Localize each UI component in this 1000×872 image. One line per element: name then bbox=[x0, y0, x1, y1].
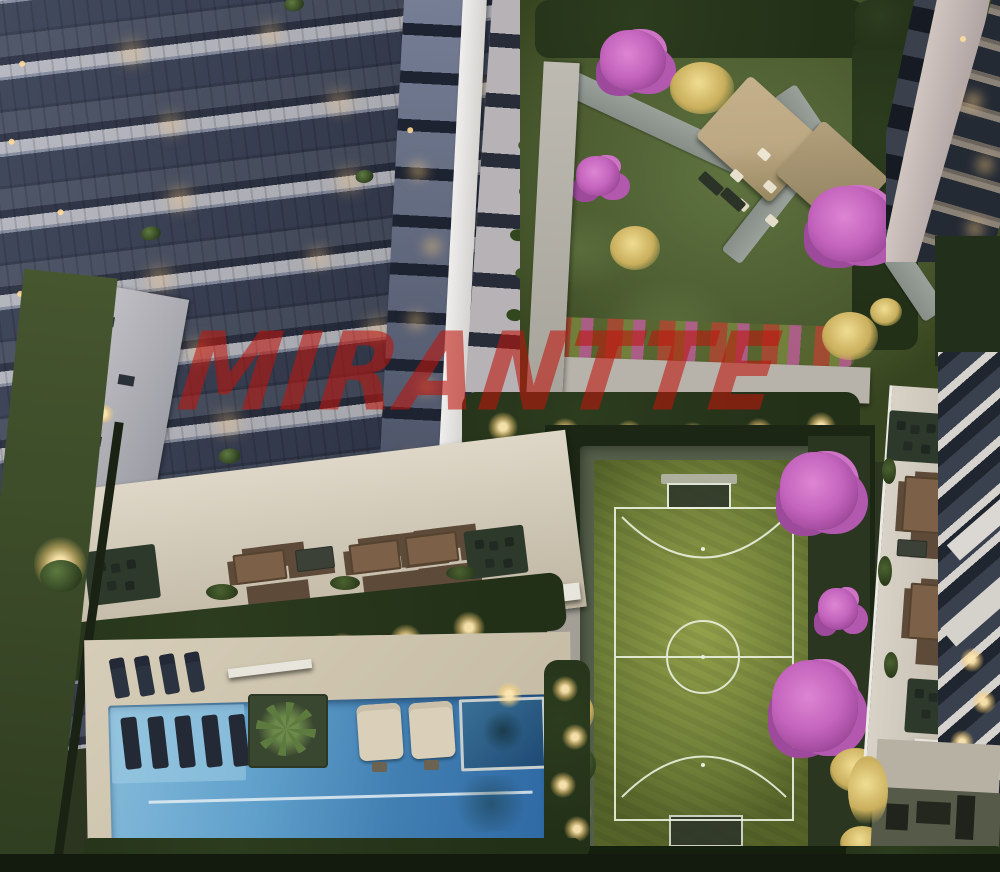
console-table bbox=[896, 539, 927, 558]
terrace-planter bbox=[878, 556, 892, 586]
balcony-plant bbox=[140, 225, 162, 241]
lawn-tree bbox=[40, 560, 82, 592]
terrace-planter bbox=[884, 652, 898, 678]
lit-window-row bbox=[8, 138, 15, 145]
hedge-uplight bbox=[496, 682, 522, 708]
right-tower-top bbox=[886, 0, 1000, 262]
mid-right-planting bbox=[935, 236, 1000, 366]
balcony-plant bbox=[355, 169, 374, 184]
lounge-chairs bbox=[915, 689, 925, 699]
poolside-hedge bbox=[544, 660, 590, 860]
penalty-spot bbox=[701, 763, 705, 767]
goal-back-pad bbox=[661, 474, 737, 484]
palm-tree bbox=[256, 702, 316, 756]
bougainvillea-pink bbox=[780, 452, 858, 530]
garden-top-hedge bbox=[535, 0, 865, 58]
palm-planter bbox=[248, 694, 328, 768]
bougainvillea-pink bbox=[772, 660, 858, 752]
penalty-spot bbox=[701, 547, 705, 551]
bbq-equipment bbox=[886, 803, 909, 830]
bbq-equipment bbox=[955, 795, 975, 840]
palm-reflection bbox=[450, 775, 531, 833]
garden-bench bbox=[720, 187, 747, 213]
bougainvillea-pink bbox=[818, 588, 858, 630]
flower-cluster-pink bbox=[600, 30, 666, 90]
flower-cluster-pink bbox=[576, 156, 620, 196]
aerial-rendering-scene: MIRANTTE bbox=[0, 0, 1000, 872]
hedge-uplight bbox=[550, 772, 576, 798]
lit-window bbox=[972, 690, 996, 714]
terrace-planter bbox=[330, 576, 360, 590]
hedge-uplight bbox=[562, 724, 588, 750]
lit-window-row bbox=[57, 209, 64, 216]
dining-table bbox=[232, 549, 287, 585]
side-table bbox=[424, 760, 439, 770]
flower-cluster-pink bbox=[808, 186, 894, 262]
daybed bbox=[356, 703, 404, 762]
dining-table bbox=[404, 531, 459, 567]
bbq-equipment bbox=[916, 801, 951, 825]
lit-bush-gold bbox=[848, 756, 888, 826]
dining-table-dark bbox=[295, 546, 335, 572]
center-spot bbox=[701, 655, 705, 659]
hedge-uplight bbox=[552, 676, 578, 702]
spa-palm-shadow bbox=[480, 710, 525, 752]
bottom-hedge-strip bbox=[0, 854, 1000, 872]
spa-pool bbox=[459, 697, 547, 772]
daybed bbox=[408, 701, 456, 760]
watermark-text: MIRANTTE bbox=[172, 310, 915, 435]
lit-bush-gold bbox=[610, 226, 660, 270]
goal-top bbox=[668, 484, 730, 508]
lit-bush-gold bbox=[670, 62, 734, 114]
lit-window-row bbox=[19, 61, 26, 68]
lit-window-column bbox=[960, 36, 966, 42]
field-lines bbox=[615, 508, 793, 820]
lit-window bbox=[960, 648, 984, 672]
dining-table bbox=[348, 539, 401, 575]
terrace-planter bbox=[206, 584, 238, 600]
side-table bbox=[372, 762, 387, 772]
terrace-planter bbox=[446, 566, 476, 580]
balcony-plant bbox=[218, 447, 242, 465]
lounge-chairs bbox=[474, 539, 484, 549]
balcony-plant bbox=[283, 0, 305, 12]
terrace-planter bbox=[882, 458, 896, 484]
